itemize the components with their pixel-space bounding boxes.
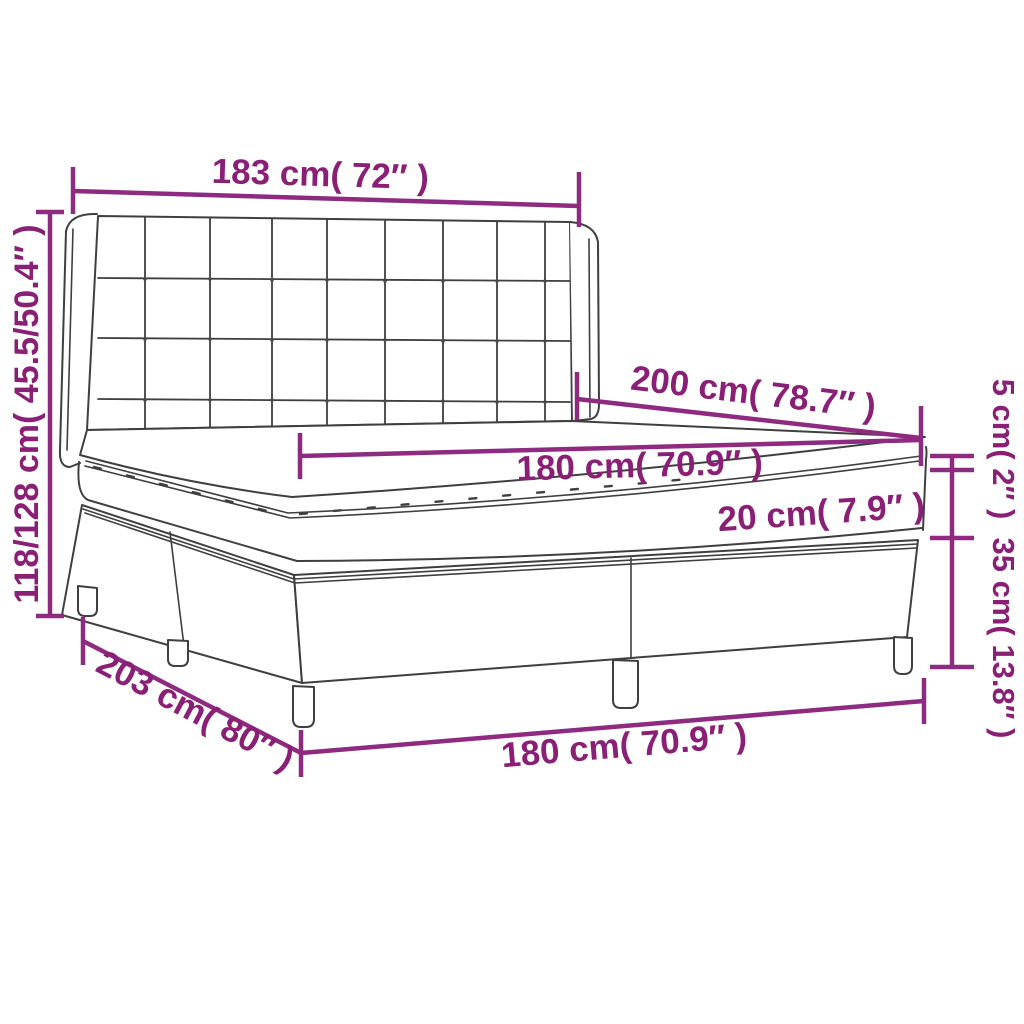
label-bed-height-range: 118/128 cm( 45.5/50.4″ ) <box>8 224 46 603</box>
leg <box>293 686 314 727</box>
leg <box>168 640 188 666</box>
leg <box>894 637 912 674</box>
label-mattress-width: 180 cm( 70.9″ ) <box>516 443 763 489</box>
dim-topper-and-base-height <box>930 456 974 667</box>
label-base-height: 35 cm( 13.8″ ) <box>986 538 1021 739</box>
leg <box>613 660 638 708</box>
headboard-right-wing <box>570 222 599 421</box>
label-bed-length: 200 cm( 78.7″ ) <box>629 359 878 427</box>
bed-drawing <box>60 214 927 727</box>
headboard-panel <box>87 216 572 430</box>
label-headboard-width: 183 cm( 72″ ) <box>211 152 429 197</box>
label-topper-height: 5 cm( 2″ ) <box>986 379 1021 520</box>
right-wing-piping <box>589 239 590 417</box>
mattress-top-surface <box>80 421 925 497</box>
bed-diagram-canvas: 183 cm( 72″ ) 118/128 cm( 45.5/50.4″ ) 2… <box>0 0 1024 1024</box>
dimension-diagram: 183 cm( 72″ ) 118/128 cm( 45.5/50.4″ ) 2… <box>0 0 1024 1024</box>
leg <box>78 586 97 616</box>
headboard-outline <box>87 216 572 430</box>
